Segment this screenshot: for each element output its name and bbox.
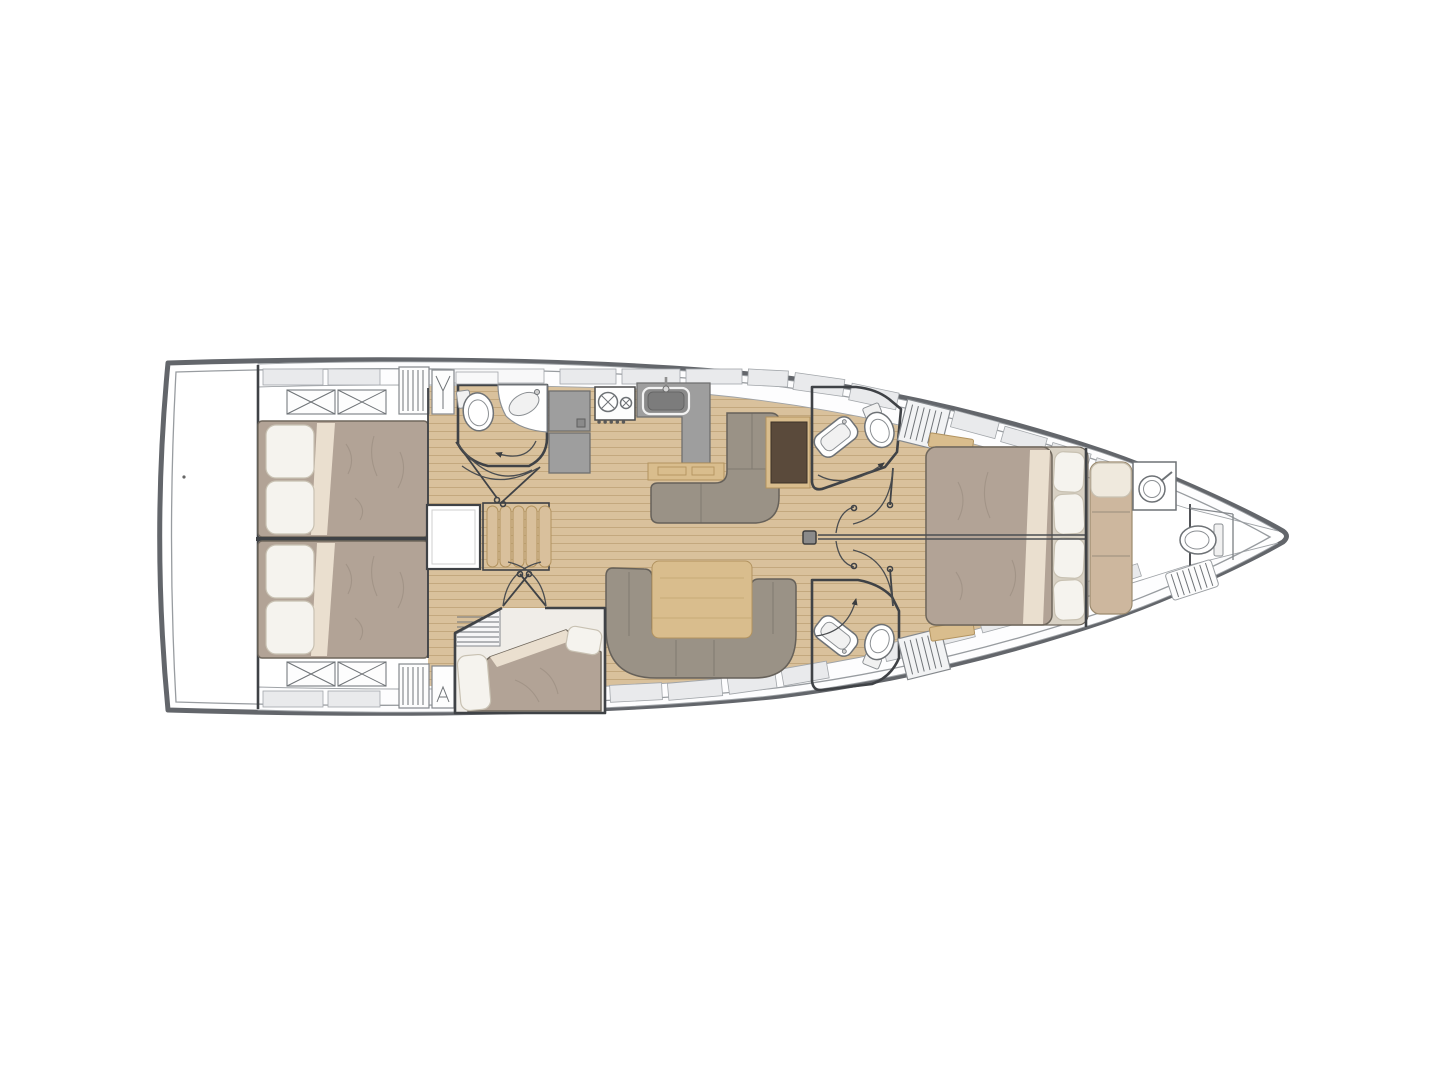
faucet-base	[663, 386, 669, 392]
sideboard-top	[771, 422, 807, 483]
deck-panel	[686, 369, 742, 384]
pillow	[565, 625, 603, 656]
deck-panel	[622, 369, 680, 384]
aft-cabin-starboard	[258, 421, 428, 537]
companionway	[427, 503, 551, 570]
forward-cabin	[926, 433, 1088, 642]
deck-panel	[560, 369, 616, 384]
mast-post	[803, 531, 816, 544]
pillow	[266, 601, 314, 654]
step	[526, 506, 537, 567]
pillow	[1053, 537, 1085, 579]
toilet	[1180, 524, 1223, 556]
pillow	[1053, 579, 1085, 621]
aft-cabin-port	[258, 541, 428, 658]
fridge-handle	[577, 419, 585, 427]
pillow	[266, 481, 314, 534]
step	[487, 506, 498, 567]
deck-panel	[748, 369, 789, 387]
pillow	[266, 425, 314, 478]
dining-table	[652, 561, 752, 638]
deck-panel	[328, 369, 380, 385]
deck-panel	[610, 683, 663, 703]
deck-panel	[263, 369, 323, 385]
refrigerator-lower	[549, 433, 590, 473]
pillow	[1053, 493, 1085, 535]
yacht-floor-plan	[0, 0, 1440, 1080]
berth-pillow	[1091, 463, 1131, 497]
step	[539, 506, 551, 567]
transom-dot	[182, 475, 185, 478]
step	[513, 506, 524, 567]
engine-compartment	[427, 505, 480, 569]
deck-panel	[328, 691, 380, 707]
salon-port	[606, 561, 796, 678]
mid-cabin	[455, 608, 605, 713]
sink-basin	[648, 392, 684, 410]
step	[500, 506, 511, 567]
pillow	[1053, 451, 1085, 493]
head-shelf	[456, 372, 498, 384]
pillow	[266, 545, 314, 598]
faucet-icon	[535, 390, 540, 395]
pillow	[457, 654, 492, 711]
deck-panel	[263, 691, 323, 707]
